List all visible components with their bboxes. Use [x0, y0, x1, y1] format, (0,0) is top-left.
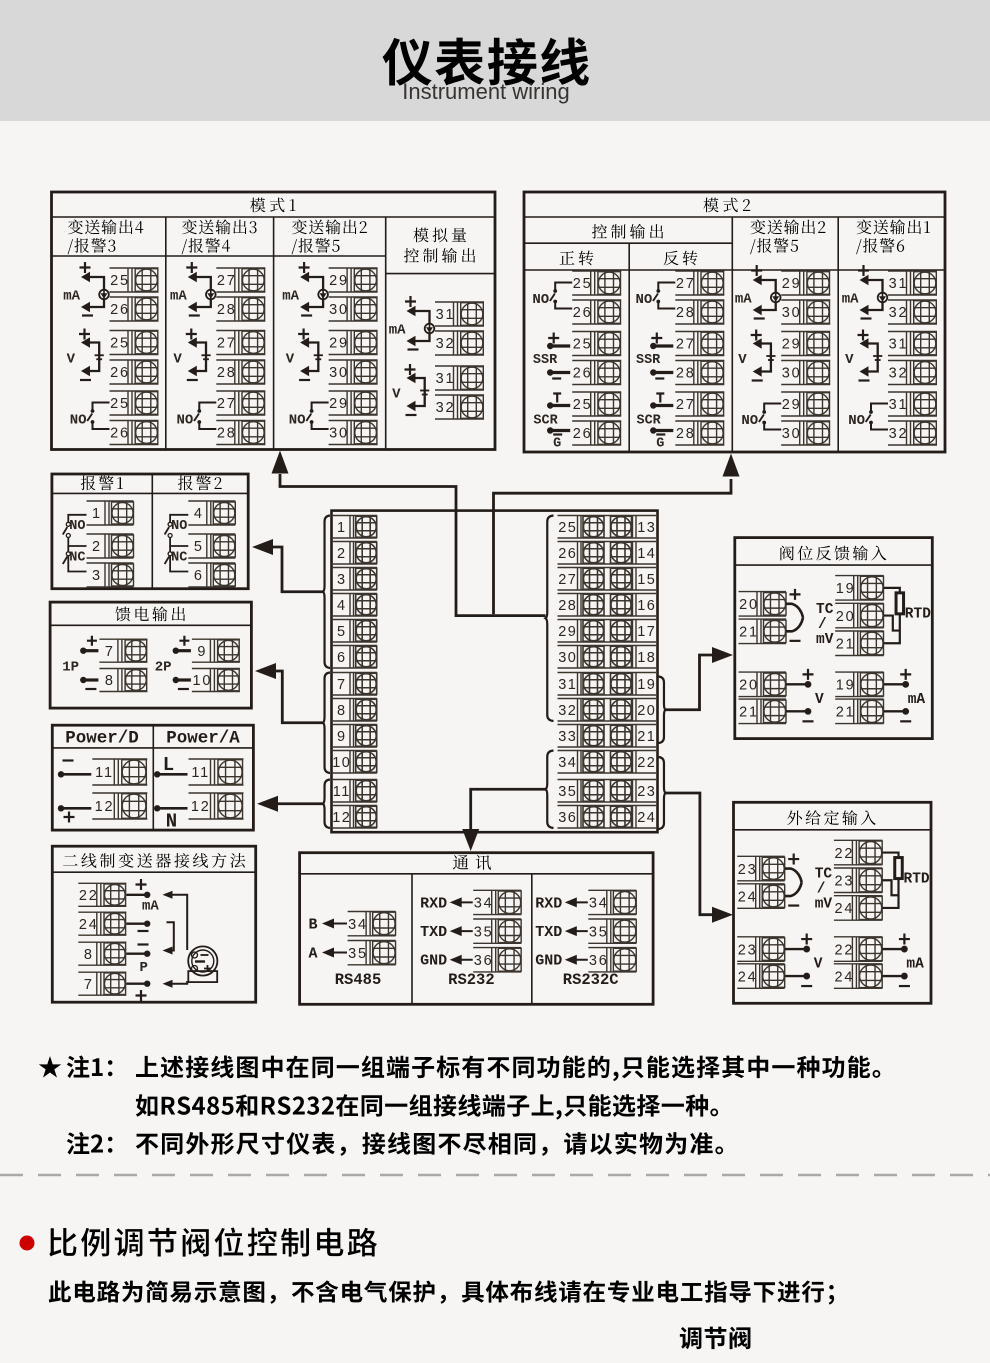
- svg-text:TC: TC: [815, 867, 833, 883]
- svg-text:A: A: [308, 946, 317, 963]
- svg-text:32: 32: [889, 426, 909, 442]
- svg-text:24: 24: [738, 889, 758, 905]
- svg-text:35: 35: [558, 784, 577, 800]
- svg-text:33: 33: [558, 729, 577, 745]
- svg-text:G: G: [553, 437, 561, 452]
- svg-text:P: P: [140, 960, 148, 976]
- svg-text:26: 26: [110, 426, 130, 442]
- svg-text:17: 17: [637, 624, 656, 640]
- svg-text:27: 27: [217, 273, 237, 289]
- svg-text:N: N: [166, 810, 177, 832]
- svg-text:8: 8: [84, 947, 94, 963]
- svg-text:2: 2: [92, 539, 102, 555]
- svg-text:V: V: [738, 352, 747, 368]
- svg-text:1P: 1P: [62, 659, 79, 675]
- svg-text:RS232C: RS232C: [563, 971, 619, 989]
- svg-text:32: 32: [436, 336, 456, 352]
- svg-text:28: 28: [676, 305, 696, 321]
- svg-text:mV: mV: [816, 632, 834, 648]
- svg-text:31: 31: [436, 371, 456, 387]
- svg-text:V: V: [67, 351, 76, 367]
- svg-text:16: 16: [637, 598, 656, 614]
- svg-text:Instrument wiring: Instrument wiring: [402, 79, 570, 104]
- svg-text:24: 24: [834, 901, 854, 917]
- svg-text:mA: mA: [142, 899, 159, 915]
- svg-text:10: 10: [192, 673, 212, 689]
- svg-text:28: 28: [217, 365, 237, 381]
- svg-text:29: 29: [782, 397, 802, 413]
- svg-text:G: G: [656, 437, 664, 452]
- svg-text:NO: NO: [741, 413, 758, 429]
- svg-text:20: 20: [739, 678, 759, 694]
- svg-text:24: 24: [637, 810, 656, 826]
- svg-text:35: 35: [348, 946, 368, 962]
- svg-text:1: 1: [92, 506, 102, 522]
- svg-text:RXD: RXD: [420, 895, 447, 912]
- svg-text:TXD: TXD: [535, 924, 562, 941]
- svg-text:27: 27: [558, 572, 577, 588]
- svg-text:3: 3: [337, 572, 347, 588]
- svg-text:mA: mA: [842, 292, 859, 308]
- svg-text:mA: mA: [282, 289, 299, 305]
- svg-text:RS232: RS232: [448, 971, 495, 989]
- svg-text:30: 30: [329, 365, 349, 381]
- svg-text:32: 32: [436, 400, 456, 416]
- svg-text:NO: NO: [532, 292, 549, 308]
- svg-text:GND: GND: [535, 953, 562, 970]
- svg-text:25: 25: [110, 336, 130, 352]
- svg-text:27: 27: [676, 397, 696, 413]
- svg-text:V: V: [845, 352, 854, 368]
- svg-text:29: 29: [558, 624, 577, 640]
- svg-text:21: 21: [637, 729, 656, 745]
- svg-text:29: 29: [329, 396, 349, 412]
- svg-text:V: V: [173, 351, 182, 367]
- svg-text:NO: NO: [848, 413, 865, 429]
- svg-text:NC: NC: [171, 551, 187, 566]
- svg-text:GND: GND: [420, 953, 447, 970]
- svg-text:V: V: [286, 351, 295, 367]
- svg-text:4: 4: [194, 506, 204, 522]
- svg-text:B: B: [308, 917, 317, 934]
- svg-text:30: 30: [782, 426, 802, 442]
- svg-text:32: 32: [889, 305, 909, 321]
- svg-text:6: 6: [337, 650, 347, 666]
- svg-text:29: 29: [782, 276, 802, 292]
- svg-text:mA: mA: [170, 289, 187, 305]
- svg-text:SSR: SSR: [636, 353, 661, 368]
- svg-text:5: 5: [194, 539, 204, 555]
- svg-text:12: 12: [191, 799, 211, 815]
- svg-text:2P: 2P: [155, 659, 172, 675]
- svg-text:L: L: [163, 754, 174, 776]
- svg-text:20: 20: [836, 609, 856, 625]
- svg-text:11: 11: [191, 765, 210, 781]
- svg-text:26: 26: [110, 365, 130, 381]
- svg-text:26: 26: [573, 366, 593, 382]
- svg-text:22: 22: [834, 942, 854, 958]
- svg-text:18: 18: [637, 650, 656, 666]
- svg-text:23: 23: [738, 862, 758, 878]
- svg-text:31: 31: [889, 337, 909, 353]
- svg-text:30: 30: [782, 366, 802, 382]
- svg-text:/: /: [817, 882, 826, 898]
- svg-text:TXD: TXD: [420, 924, 447, 941]
- svg-text:25: 25: [573, 397, 593, 413]
- svg-text:34: 34: [474, 896, 494, 912]
- svg-text:21: 21: [739, 625, 759, 641]
- svg-text:28: 28: [217, 426, 237, 442]
- svg-text:V: V: [814, 957, 823, 973]
- svg-text:9: 9: [197, 644, 207, 660]
- svg-text:NO: NO: [635, 292, 652, 308]
- svg-text:14: 14: [637, 546, 656, 562]
- svg-text:27: 27: [676, 337, 696, 353]
- svg-text:32: 32: [889, 366, 909, 382]
- svg-text:31: 31: [889, 276, 909, 292]
- svg-text:22: 22: [834, 846, 854, 862]
- svg-text:mA: mA: [63, 289, 80, 305]
- svg-text:28: 28: [676, 426, 696, 442]
- svg-text:30: 30: [558, 650, 577, 666]
- svg-text:NC: NC: [69, 551, 85, 566]
- svg-text:24: 24: [738, 969, 758, 985]
- svg-text:36: 36: [589, 953, 609, 969]
- svg-text:34: 34: [589, 896, 609, 912]
- svg-text:36: 36: [474, 953, 494, 969]
- svg-text:25: 25: [558, 520, 577, 536]
- svg-text:30: 30: [329, 426, 349, 442]
- svg-text:RTD: RTD: [905, 607, 931, 623]
- svg-text:V: V: [392, 387, 401, 403]
- svg-text:29: 29: [782, 337, 802, 353]
- svg-text:24: 24: [834, 969, 854, 985]
- svg-text:26: 26: [558, 546, 577, 562]
- svg-text:19: 19: [836, 581, 856, 597]
- svg-text:12: 12: [95, 799, 115, 815]
- svg-text:21: 21: [836, 636, 856, 652]
- svg-text:26: 26: [573, 305, 593, 321]
- svg-text:11: 11: [95, 765, 114, 781]
- svg-text:23: 23: [637, 784, 656, 800]
- svg-text:5: 5: [337, 624, 347, 640]
- svg-text:SCR: SCR: [533, 414, 558, 429]
- svg-text:V: V: [815, 692, 824, 708]
- svg-text:mA: mA: [906, 957, 924, 973]
- svg-text:mA: mA: [908, 692, 926, 708]
- svg-text:30: 30: [329, 302, 349, 318]
- svg-text:NO: NO: [70, 412, 87, 428]
- svg-text:27: 27: [217, 336, 237, 352]
- svg-text:mA: mA: [389, 323, 406, 339]
- svg-text:mA: mA: [735, 292, 752, 308]
- svg-text:25: 25: [110, 396, 130, 412]
- svg-text:12: 12: [332, 810, 351, 826]
- svg-text:RXD: RXD: [535, 895, 562, 912]
- svg-text:30: 30: [782, 305, 802, 321]
- svg-text:26: 26: [573, 426, 593, 442]
- svg-text:NO: NO: [176, 412, 193, 428]
- svg-text:35: 35: [589, 924, 609, 940]
- svg-text:32: 32: [558, 703, 577, 719]
- svg-text:25: 25: [110, 273, 130, 289]
- svg-text:29: 29: [329, 273, 349, 289]
- svg-text:mV: mV: [815, 897, 833, 913]
- svg-text:13: 13: [637, 520, 656, 536]
- svg-text:20: 20: [637, 703, 656, 719]
- svg-text:28: 28: [676, 366, 696, 382]
- svg-text:36: 36: [558, 810, 577, 826]
- svg-text:19: 19: [637, 677, 656, 693]
- svg-text:9: 9: [337, 729, 347, 745]
- svg-text:35: 35: [474, 924, 494, 940]
- svg-text:4: 4: [337, 598, 347, 614]
- svg-text:NO: NO: [171, 519, 187, 534]
- svg-text:SCR: SCR: [636, 414, 661, 429]
- svg-text:31: 31: [558, 677, 577, 693]
- svg-text:/: /: [818, 617, 827, 633]
- svg-text:Power/D: Power/D: [65, 729, 139, 749]
- svg-text:31: 31: [436, 307, 456, 323]
- svg-text:15: 15: [637, 572, 656, 588]
- svg-text:19: 19: [836, 678, 856, 694]
- svg-text:23: 23: [834, 873, 854, 889]
- svg-text:6: 6: [194, 568, 204, 584]
- svg-text:10: 10: [332, 755, 351, 771]
- svg-text:31: 31: [889, 397, 909, 413]
- svg-text:25: 25: [573, 337, 593, 353]
- svg-text:NO: NO: [69, 519, 85, 534]
- svg-text:1: 1: [337, 520, 347, 536]
- svg-text:8: 8: [105, 673, 115, 689]
- svg-text:NO: NO: [289, 412, 306, 428]
- svg-text:TC: TC: [816, 602, 834, 618]
- svg-text:23: 23: [738, 942, 758, 958]
- svg-text:28: 28: [217, 302, 237, 318]
- svg-text:26: 26: [110, 302, 130, 318]
- svg-text:22: 22: [79, 888, 99, 904]
- svg-text:22: 22: [637, 755, 656, 771]
- svg-text:2: 2: [337, 546, 347, 562]
- svg-text:Power/A: Power/A: [166, 729, 240, 749]
- svg-text:7: 7: [337, 677, 347, 693]
- svg-text:28: 28: [558, 598, 577, 614]
- svg-text:21: 21: [739, 705, 759, 721]
- svg-text:20: 20: [739, 597, 759, 613]
- svg-text:RS485: RS485: [335, 971, 382, 989]
- svg-text:11: 11: [333, 784, 351, 800]
- svg-text:27: 27: [676, 276, 696, 292]
- svg-text:3: 3: [92, 568, 102, 584]
- svg-text:25: 25: [573, 276, 593, 292]
- svg-text:SSR: SSR: [533, 353, 558, 368]
- svg-text:24: 24: [79, 917, 99, 933]
- svg-text:27: 27: [217, 396, 237, 412]
- svg-text:7: 7: [105, 644, 115, 660]
- svg-text:7: 7: [84, 977, 94, 993]
- svg-text:21: 21: [836, 705, 856, 721]
- svg-text:34: 34: [348, 917, 368, 933]
- svg-text:34: 34: [558, 755, 577, 771]
- svg-text:8: 8: [337, 703, 347, 719]
- svg-text:29: 29: [329, 336, 349, 352]
- svg-text:RTD: RTD: [904, 871, 930, 887]
